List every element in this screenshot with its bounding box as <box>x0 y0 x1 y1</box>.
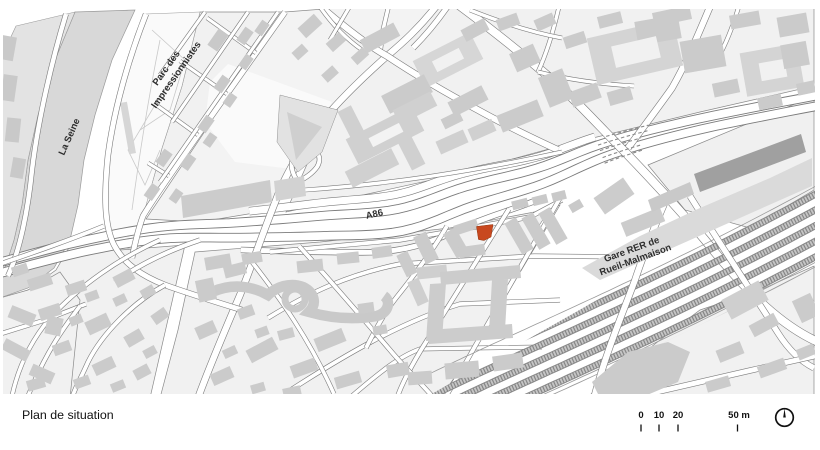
svg-text:20: 20 <box>673 410 684 421</box>
svg-text:10: 10 <box>654 410 665 421</box>
svg-text:Plan de situation: Plan de situation <box>22 408 114 422</box>
svg-text:50 m: 50 m <box>728 410 750 421</box>
svg-text:0: 0 <box>638 410 643 421</box>
